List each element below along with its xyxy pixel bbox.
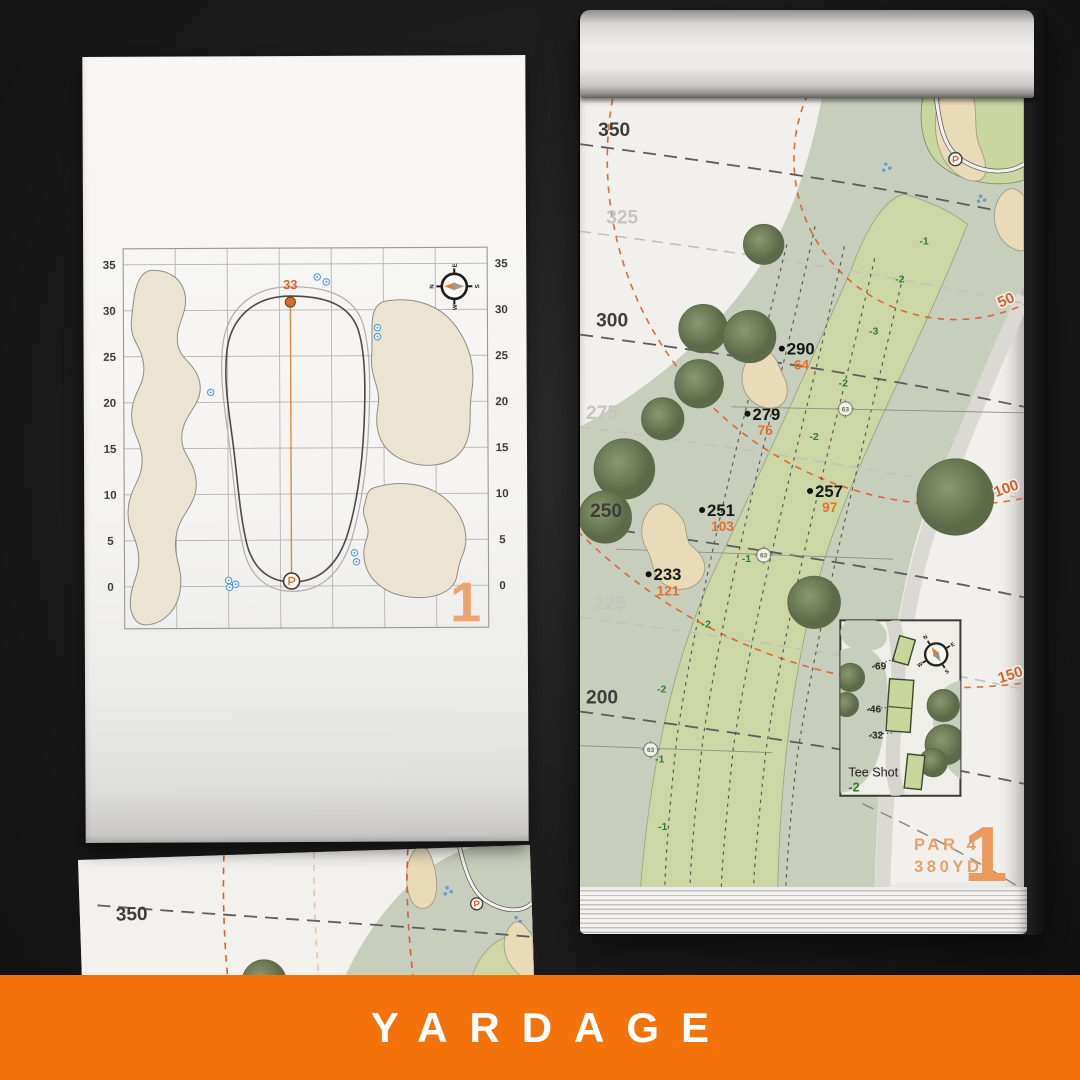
page-stack-edge[interactable] bbox=[580, 887, 1027, 934]
svg-text:97: 97 bbox=[822, 500, 837, 515]
svg-text:30: 30 bbox=[495, 304, 508, 316]
svg-text:103: 103 bbox=[711, 519, 734, 534]
yardage-banner: YARDAGE bbox=[0, 975, 1080, 1080]
svg-text:-32: -32 bbox=[869, 731, 884, 742]
svg-text:225: 225 bbox=[594, 593, 626, 614]
svg-text:20: 20 bbox=[103, 398, 116, 410]
svg-text:63: 63 bbox=[842, 406, 850, 413]
svg-text:-1: -1 bbox=[655, 754, 665, 766]
svg-text:-46: -46 bbox=[867, 705, 882, 716]
svg-text:35: 35 bbox=[495, 258, 508, 270]
svg-text:5: 5 bbox=[107, 536, 114, 548]
svg-text:63: 63 bbox=[760, 553, 768, 560]
banner-title: YARDAGE bbox=[349, 1004, 731, 1052]
svg-text:0: 0 bbox=[499, 580, 505, 592]
svg-text:75: 75 bbox=[758, 423, 774, 438]
svg-text:200: 200 bbox=[586, 688, 618, 709]
svg-text:10: 10 bbox=[104, 490, 117, 502]
hole-map: 63 63 63 -1 -2 -3 -2 -2 bbox=[580, 96, 1024, 888]
svg-text:25: 25 bbox=[495, 350, 508, 362]
pin-marker-icon bbox=[949, 153, 962, 166]
svg-text:325: 325 bbox=[606, 207, 638, 228]
svg-text:251: 251 bbox=[707, 501, 735, 520]
svg-text:30: 30 bbox=[103, 306, 116, 318]
svg-text:63: 63 bbox=[647, 747, 655, 754]
svg-text:250: 250 bbox=[590, 501, 622, 522]
green-front-marker bbox=[284, 573, 300, 589]
svg-text:W: W bbox=[453, 304, 459, 310]
green-detail-map: 33 bbox=[82, 55, 528, 843]
svg-text:0: 0 bbox=[107, 582, 113, 594]
svg-text:25: 25 bbox=[103, 352, 116, 364]
svg-text:E: E bbox=[453, 263, 459, 267]
svg-text:-1: -1 bbox=[742, 553, 752, 565]
mockup-scene: 33 bbox=[0, 0, 1080, 1080]
svg-text:-1: -1 bbox=[658, 821, 668, 833]
bunker bbox=[127, 270, 201, 625]
svg-text:-2: -2 bbox=[809, 431, 819, 443]
green-outline bbox=[221, 286, 370, 591]
svg-text:35: 35 bbox=[103, 260, 116, 272]
svg-text:-2: -2 bbox=[657, 684, 667, 696]
svg-text:290: 290 bbox=[787, 340, 815, 359]
yard-line-label: 350 bbox=[116, 904, 148, 926]
hole-page: 63 63 63 -1 -2 -3 -2 -2 bbox=[580, 96, 1024, 888]
svg-text:S: S bbox=[475, 284, 481, 288]
svg-text:10: 10 bbox=[496, 488, 509, 500]
pin-position-dot bbox=[285, 297, 295, 307]
svg-text:257: 257 bbox=[815, 482, 843, 501]
svg-text:-2: -2 bbox=[701, 618, 711, 630]
svg-text:233: 233 bbox=[654, 565, 682, 584]
tee-shot-inset: -69 -46 -32 N E S W Te bbox=[834, 616, 967, 796]
sprinkler-dots bbox=[207, 273, 382, 590]
svg-text:-2: -2 bbox=[839, 378, 849, 390]
svg-text:-1: -1 bbox=[919, 235, 929, 247]
svg-text:-69: -69 bbox=[872, 661, 887, 672]
hole-number: 1 bbox=[964, 810, 1008, 888]
svg-text:-3: -3 bbox=[869, 326, 879, 338]
svg-text:300: 300 bbox=[596, 311, 628, 332]
svg-text:275: 275 bbox=[586, 403, 618, 424]
tee-shot-elevation: -2 bbox=[848, 781, 859, 795]
green-detail-page: 33 bbox=[82, 55, 528, 843]
svg-text:15: 15 bbox=[104, 444, 117, 456]
svg-text:N: N bbox=[430, 284, 436, 288]
bunker bbox=[371, 300, 473, 466]
svg-text:15: 15 bbox=[496, 442, 509, 454]
flipped-page-curl[interactable] bbox=[580, 10, 1034, 98]
pin-marker-icon bbox=[470, 898, 482, 910]
yardage-book: 63 63 63 -1 -2 -3 -2 -2 bbox=[578, 10, 1048, 935]
svg-text:64: 64 bbox=[794, 358, 810, 373]
svg-text:279: 279 bbox=[753, 405, 781, 424]
svg-text:121: 121 bbox=[657, 583, 680, 598]
pin-distance-label: 33 bbox=[283, 277, 298, 292]
tee-shot-title: Tee Shot bbox=[848, 766, 898, 780]
compass-icon: N E S W bbox=[430, 263, 482, 310]
svg-text:350: 350 bbox=[598, 120, 630, 141]
svg-text:-2: -2 bbox=[895, 274, 905, 286]
pin-depth-line bbox=[290, 302, 291, 573]
hole-number: 1 bbox=[450, 570, 481, 633]
svg-text:5: 5 bbox=[499, 534, 506, 546]
svg-text:20: 20 bbox=[495, 396, 508, 408]
